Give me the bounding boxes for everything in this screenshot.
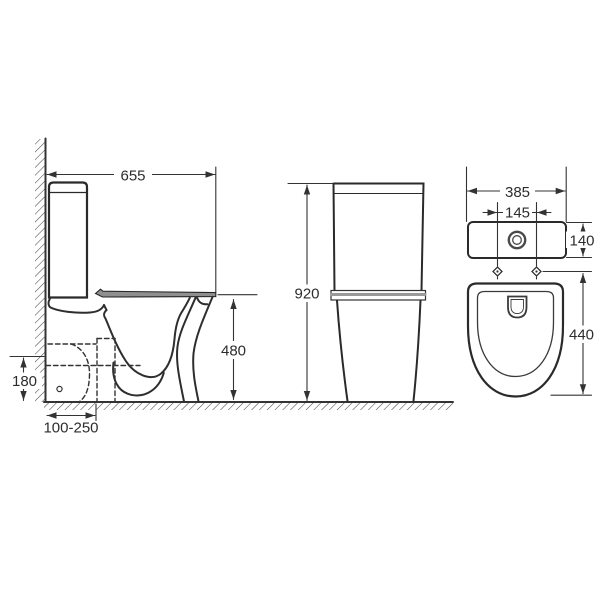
seat-band-rear [331, 291, 426, 301]
dim-label-100-250: 100-250 [43, 420, 98, 437]
technical-drawing-sheet: 655 480 180 100-250 [0, 0, 600, 600]
dim-label-480: 480 [221, 343, 246, 360]
floor-hatch [44, 403, 453, 411]
dim-label-440: 440 [569, 327, 594, 344]
dim-label-145: 145 [505, 205, 530, 222]
wall-hatch [35, 139, 45, 402]
dim-label-920: 920 [294, 286, 319, 303]
dim-label-140: 140 [569, 233, 594, 250]
toilet-three-view-drawing: 655 480 180 100-250 [0, 0, 600, 600]
dim-label-385: 385 [505, 184, 530, 201]
dim-label-655: 655 [120, 168, 145, 185]
dim-label-180: 180 [12, 373, 37, 390]
